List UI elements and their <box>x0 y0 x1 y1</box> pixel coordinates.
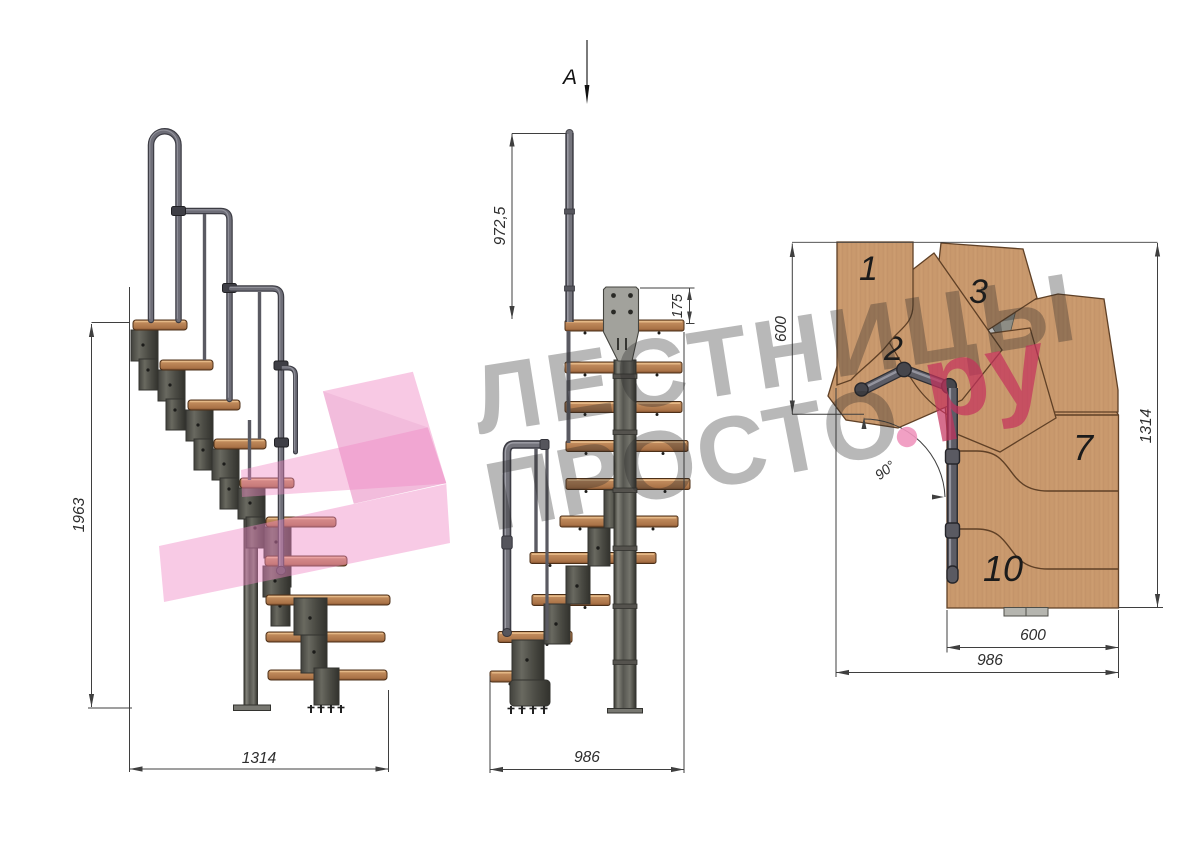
svg-text:1314: 1314 <box>1138 408 1155 443</box>
svg-text:7: 7 <box>1073 427 1095 468</box>
svg-text:ру: ру <box>913 304 1058 444</box>
svg-text:1963: 1963 <box>71 497 88 532</box>
svg-text:986: 986 <box>977 652 1003 669</box>
svg-text:A: A <box>561 66 577 89</box>
svg-text:600: 600 <box>1020 627 1046 644</box>
svg-text:986: 986 <box>574 749 600 766</box>
svg-text:972,5: 972,5 <box>492 206 509 245</box>
svg-text:10: 10 <box>983 548 1023 589</box>
svg-text:1314: 1314 <box>242 750 277 767</box>
